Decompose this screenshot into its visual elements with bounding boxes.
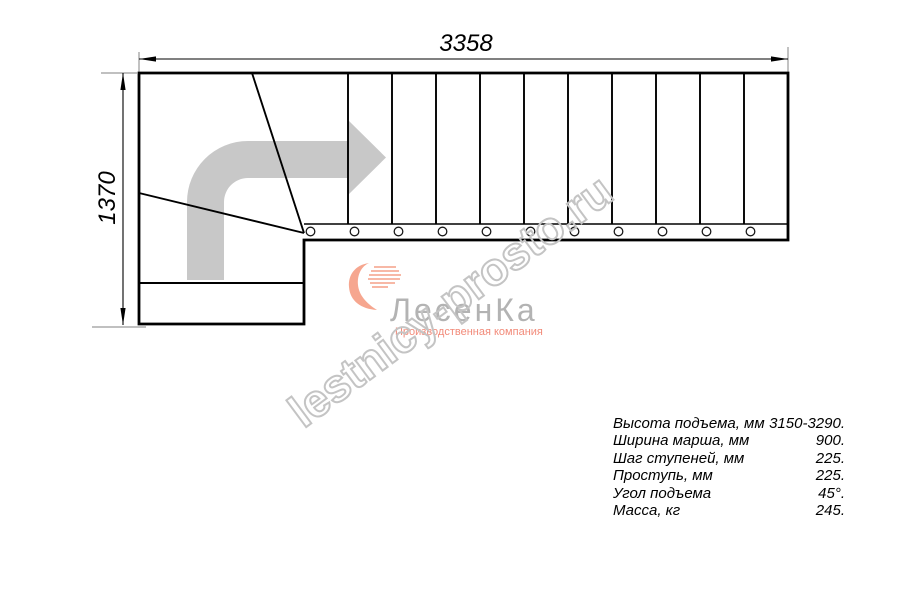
spec-label: Масса, кг (613, 502, 680, 519)
company-logo: ЛесенКа Производственная компания (344, 256, 564, 346)
specs-table: Высота подъема, мм 3150-3290. Ширина мар… (613, 415, 845, 519)
spec-value: 245. (816, 502, 845, 519)
spec-label: Ширина марша, мм (613, 432, 749, 449)
spec-label: Проступь, мм (613, 467, 713, 484)
spec-label: Высота подъема, мм (613, 415, 765, 432)
spec-label: Шаг ступеней, мм (613, 450, 744, 467)
spec-value: 900. (816, 432, 845, 449)
dimension-total-width: 1370 (94, 148, 120, 248)
spec-value: 225. (816, 450, 845, 467)
spec-row: Ширина марша, мм 900. (613, 432, 845, 449)
stair-plan-page: 3358 1370 ЛесенКа Производственная компа… (0, 0, 900, 600)
baluster-markers (306, 227, 755, 236)
spec-value: 225. (816, 467, 845, 484)
spec-row: Шаг ступеней, мм 225. (613, 450, 845, 467)
spec-row: Высота подъема, мм 3150-3290. (613, 415, 845, 432)
logo-subtitle: Производственная компания (395, 326, 543, 338)
dimension-total-length: 3358 (406, 30, 526, 58)
spec-label: Угол подъема (613, 485, 711, 502)
spec-value: 45°. (818, 485, 845, 502)
spec-row: Угол подъема 45°. (613, 485, 845, 502)
spec-row: Проступь, мм 225. (613, 467, 845, 484)
spec-value: 3150-3290. (769, 415, 845, 432)
spec-row: Масса, кг 245. (613, 502, 845, 519)
logo-name: ЛесенКа (390, 292, 538, 329)
